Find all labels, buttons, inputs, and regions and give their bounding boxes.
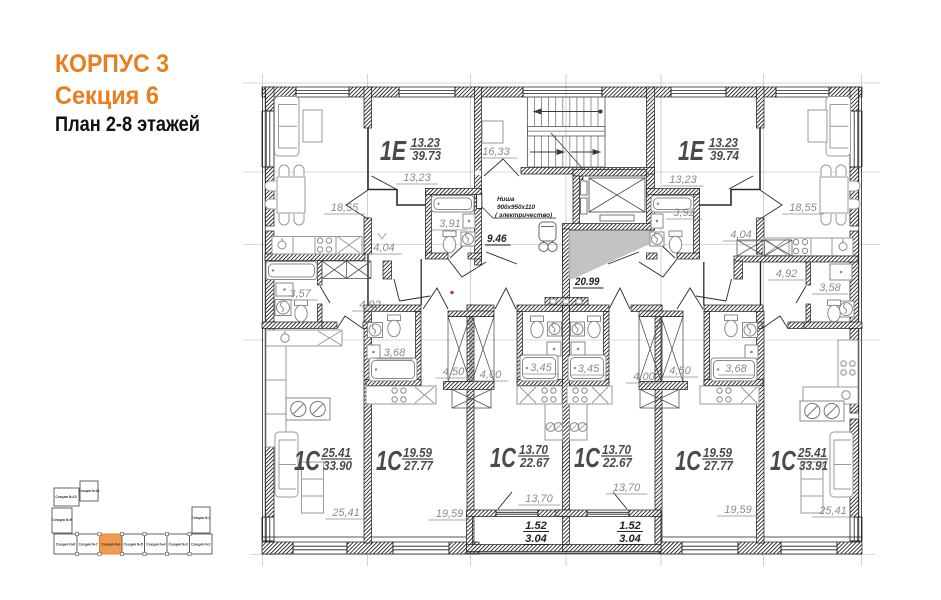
svg-text:4,04: 4,04 — [730, 229, 751, 241]
svg-text:39.74: 39.74 — [710, 148, 740, 163]
svg-text:39.73: 39.73 — [412, 148, 442, 163]
svg-text:Секция №5: Секция №5 — [123, 543, 142, 547]
svg-text:900х950х110: 900х950х110 — [497, 204, 536, 211]
svg-text:1С: 1С — [490, 442, 517, 473]
svg-text:Секция 6: Секция 6 — [55, 82, 159, 110]
svg-text:3,57: 3,57 — [289, 288, 311, 300]
svg-text:1С: 1С — [376, 445, 403, 476]
svg-text:1Е: 1Е — [380, 135, 407, 166]
svg-text:4,00: 4,00 — [633, 371, 655, 383]
svg-text:13,23: 13,23 — [669, 174, 697, 186]
svg-text:4,04: 4,04 — [373, 242, 394, 254]
svg-text:16,33: 16,33 — [482, 146, 510, 158]
svg-text:19,59: 19,59 — [724, 504, 752, 516]
svg-text:3,45: 3,45 — [578, 363, 600, 375]
svg-text:3,58: 3,58 — [819, 282, 841, 294]
svg-text:18,55: 18,55 — [331, 202, 359, 214]
svg-text:20.99: 20.99 — [574, 276, 600, 288]
svg-text:Секция №6: Секция №6 — [101, 543, 120, 547]
svg-text:4,50: 4,50 — [669, 365, 691, 377]
svg-text:27.77: 27.77 — [703, 458, 734, 473]
svg-text:19,59: 19,59 — [436, 508, 464, 520]
svg-text:Секция №4: Секция №4 — [146, 543, 165, 547]
svg-text:4,50: 4,50 — [443, 366, 465, 378]
svg-text:1Е: 1Е — [678, 135, 705, 166]
svg-text:Секция №11: Секция №11 — [78, 489, 99, 493]
svg-text:3,45: 3,45 — [530, 362, 552, 374]
svg-text:1С: 1С — [574, 442, 601, 473]
svg-text:Ниша: Ниша — [497, 196, 515, 203]
svg-text:22.67: 22.67 — [602, 455, 633, 470]
svg-text:1С: 1С — [675, 445, 702, 476]
svg-text:3,68: 3,68 — [725, 363, 747, 375]
svg-text:Секция №8: Секция №8 — [56, 543, 75, 547]
svg-text:3,92: 3,92 — [673, 207, 694, 219]
svg-text:3.04: 3.04 — [525, 533, 546, 545]
svg-text:Секция №7: Секция №7 — [78, 543, 97, 547]
svg-text:25,41: 25,41 — [331, 507, 360, 519]
svg-text:Секция №10: Секция №10 — [55, 495, 76, 499]
svg-text:1С: 1С — [770, 445, 797, 476]
svg-text:3.04: 3.04 — [619, 533, 640, 545]
svg-text:13,23: 13,23 — [403, 172, 431, 184]
svg-text:1.52: 1.52 — [619, 520, 640, 532]
svg-text:18,55: 18,55 — [789, 202, 817, 214]
svg-text:22.67: 22.67 — [519, 455, 550, 470]
svg-text:КОРПУС 3: КОРПУС 3 — [55, 50, 169, 78]
svg-text:27.77: 27.77 — [403, 458, 434, 473]
svg-text:1С: 1С — [294, 445, 321, 476]
svg-text:Секция №3: Секция №3 — [168, 543, 187, 547]
svg-text:33.91: 33.91 — [799, 458, 828, 473]
svg-text:Секция №1: Секция №1 — [191, 516, 210, 520]
svg-text:25,41: 25,41 — [818, 505, 847, 517]
svg-text:1.52: 1.52 — [525, 520, 546, 532]
svg-text:4,92: 4,92 — [359, 299, 380, 311]
svg-text:Секция №2: Секция №2 — [191, 543, 210, 547]
svg-text:3,68: 3,68 — [384, 347, 406, 359]
svg-text:План 2-8 этажей: План 2-8 этажей — [55, 113, 200, 136]
svg-text:Секция №9: Секция №9 — [52, 518, 71, 522]
svg-text:9.46: 9.46 — [487, 233, 507, 245]
svg-text:3,91: 3,91 — [439, 218, 460, 230]
svg-text:13,70: 13,70 — [613, 482, 641, 494]
svg-text:33.90: 33.90 — [323, 458, 353, 473]
svg-text:4,00: 4,00 — [480, 369, 502, 381]
svg-text:13,70: 13,70 — [525, 493, 553, 505]
svg-text:4,92: 4,92 — [776, 268, 797, 280]
